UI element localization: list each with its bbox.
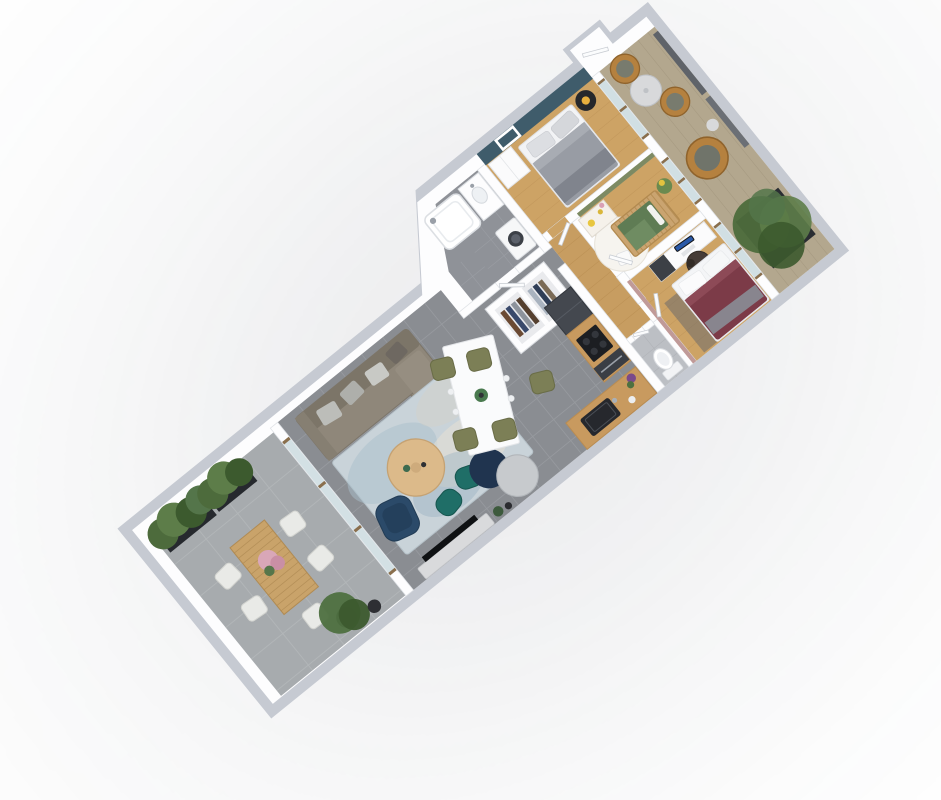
bathroom-door-leaf: [499, 283, 524, 287]
apartment-3d-floor-plan-render: [0, 0, 941, 800]
isometric-plan-group: [49, 0, 859, 739]
floor-plan-svg: [0, 0, 941, 800]
